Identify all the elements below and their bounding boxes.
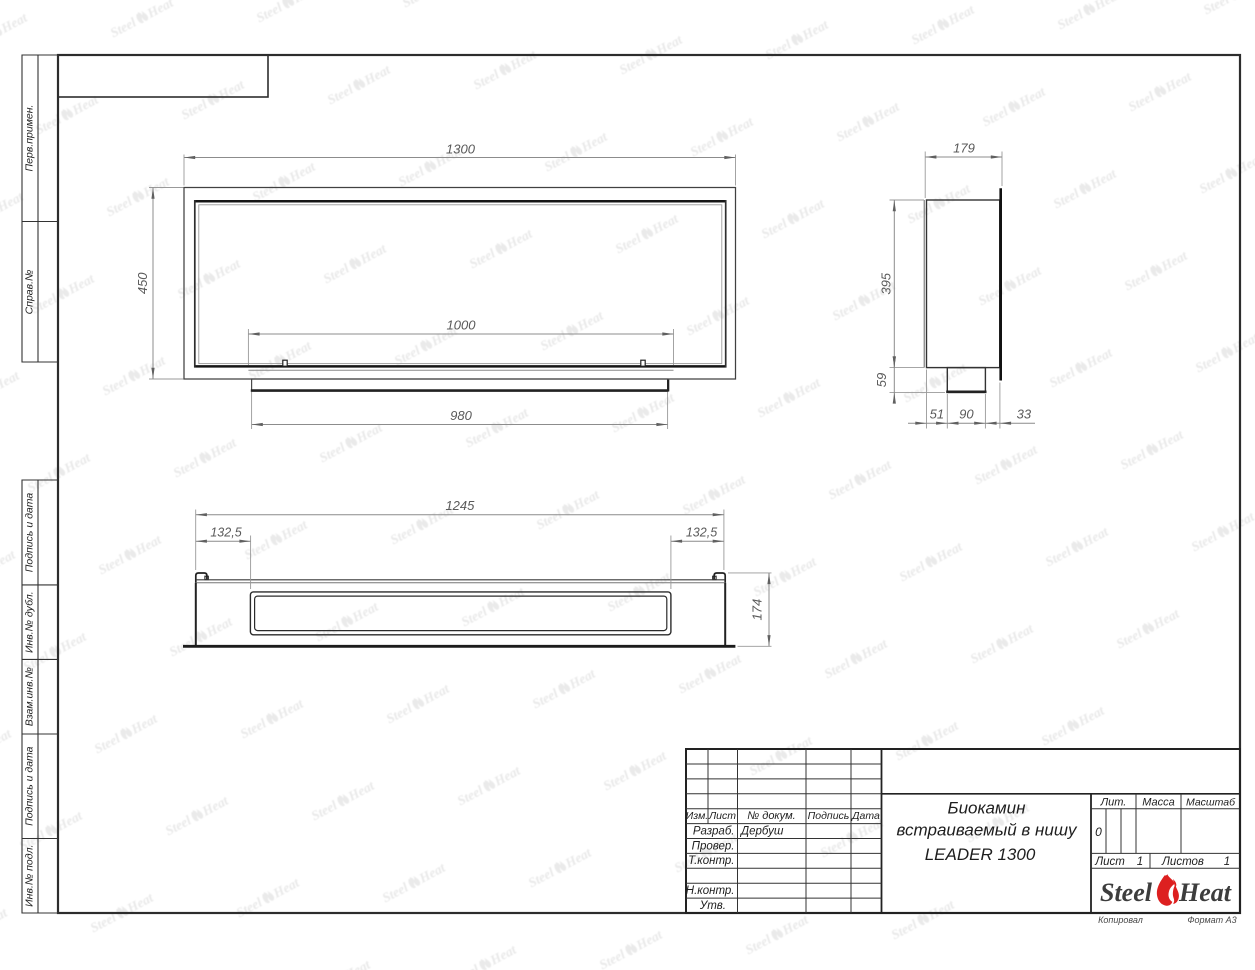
svg-text:LEADER 1300: LEADER 1300 [925,845,1036,864]
svg-text:Инв.№ подл.: Инв.№ подл. [24,845,36,907]
svg-text:179: 179 [953,141,975,156]
svg-text:№ докум.: № докум. [747,810,795,822]
svg-text:132,5: 132,5 [210,526,241,540]
svg-text:174: 174 [750,599,765,621]
svg-text:Лист: Лист [1094,856,1125,868]
svg-text:Heat: Heat [1178,878,1232,907]
svg-text:Биокамин: Биокамин [948,799,1027,818]
svg-text:Разраб.: Разраб. [693,825,735,837]
svg-text:Подпись и дата: Подпись и дата [24,746,36,826]
svg-text:33: 33 [1017,407,1032,422]
svg-text:Провер.: Провер. [692,840,735,852]
svg-text:450: 450 [135,272,150,294]
svg-text:Дата: Дата [851,810,880,822]
svg-text:51: 51 [930,407,944,422]
svg-text:Перв.примен.: Перв.примен. [24,105,36,172]
svg-text:Справ.№: Справ.№ [24,270,36,315]
svg-text:Изм.: Изм. [686,810,708,822]
svg-text:0: 0 [1095,825,1102,839]
svg-text:59: 59 [874,373,889,387]
svg-text:Подпись: Подпись [808,810,850,822]
svg-text:Утв.: Утв. [699,900,726,912]
svg-text:Масштаб: Масштаб [1186,797,1236,809]
svg-text:1000: 1000 [447,318,477,333]
svg-text:90: 90 [959,407,974,422]
svg-text:1: 1 [1224,856,1230,868]
svg-text:Лист: Лист [708,810,736,822]
svg-text:Инв.№ дубл.: Инв.№ дубл. [24,591,36,653]
svg-text:Листов: Листов [1161,856,1204,868]
svg-text:Копировал: Копировал [1098,915,1143,925]
svg-text:Лит.: Лит. [1100,797,1127,809]
svg-text:1245: 1245 [445,498,475,513]
svg-text:Взам.инв.№: Взам.инв.№ [24,667,36,726]
svg-text:Масса: Масса [1142,797,1175,809]
svg-text:Н.контр.: Н.контр. [686,885,735,897]
svg-text:132,5: 132,5 [686,526,717,540]
svg-text:Т.контр.: Т.контр. [688,855,734,867]
svg-text:1300: 1300 [446,142,476,157]
svg-text:Формат A3: Формат A3 [1187,915,1236,925]
svg-text:Подпись и дата: Подпись и дата [24,493,36,573]
svg-text:Дербуш: Дербуш [739,825,784,837]
svg-text:1: 1 [1137,856,1143,868]
svg-text:980: 980 [450,408,472,423]
svg-text:Steel: Steel [1100,878,1153,907]
svg-text:395: 395 [878,272,893,294]
svg-text:встраиваемый в нишу: встраиваемый в нишу [897,821,1078,840]
